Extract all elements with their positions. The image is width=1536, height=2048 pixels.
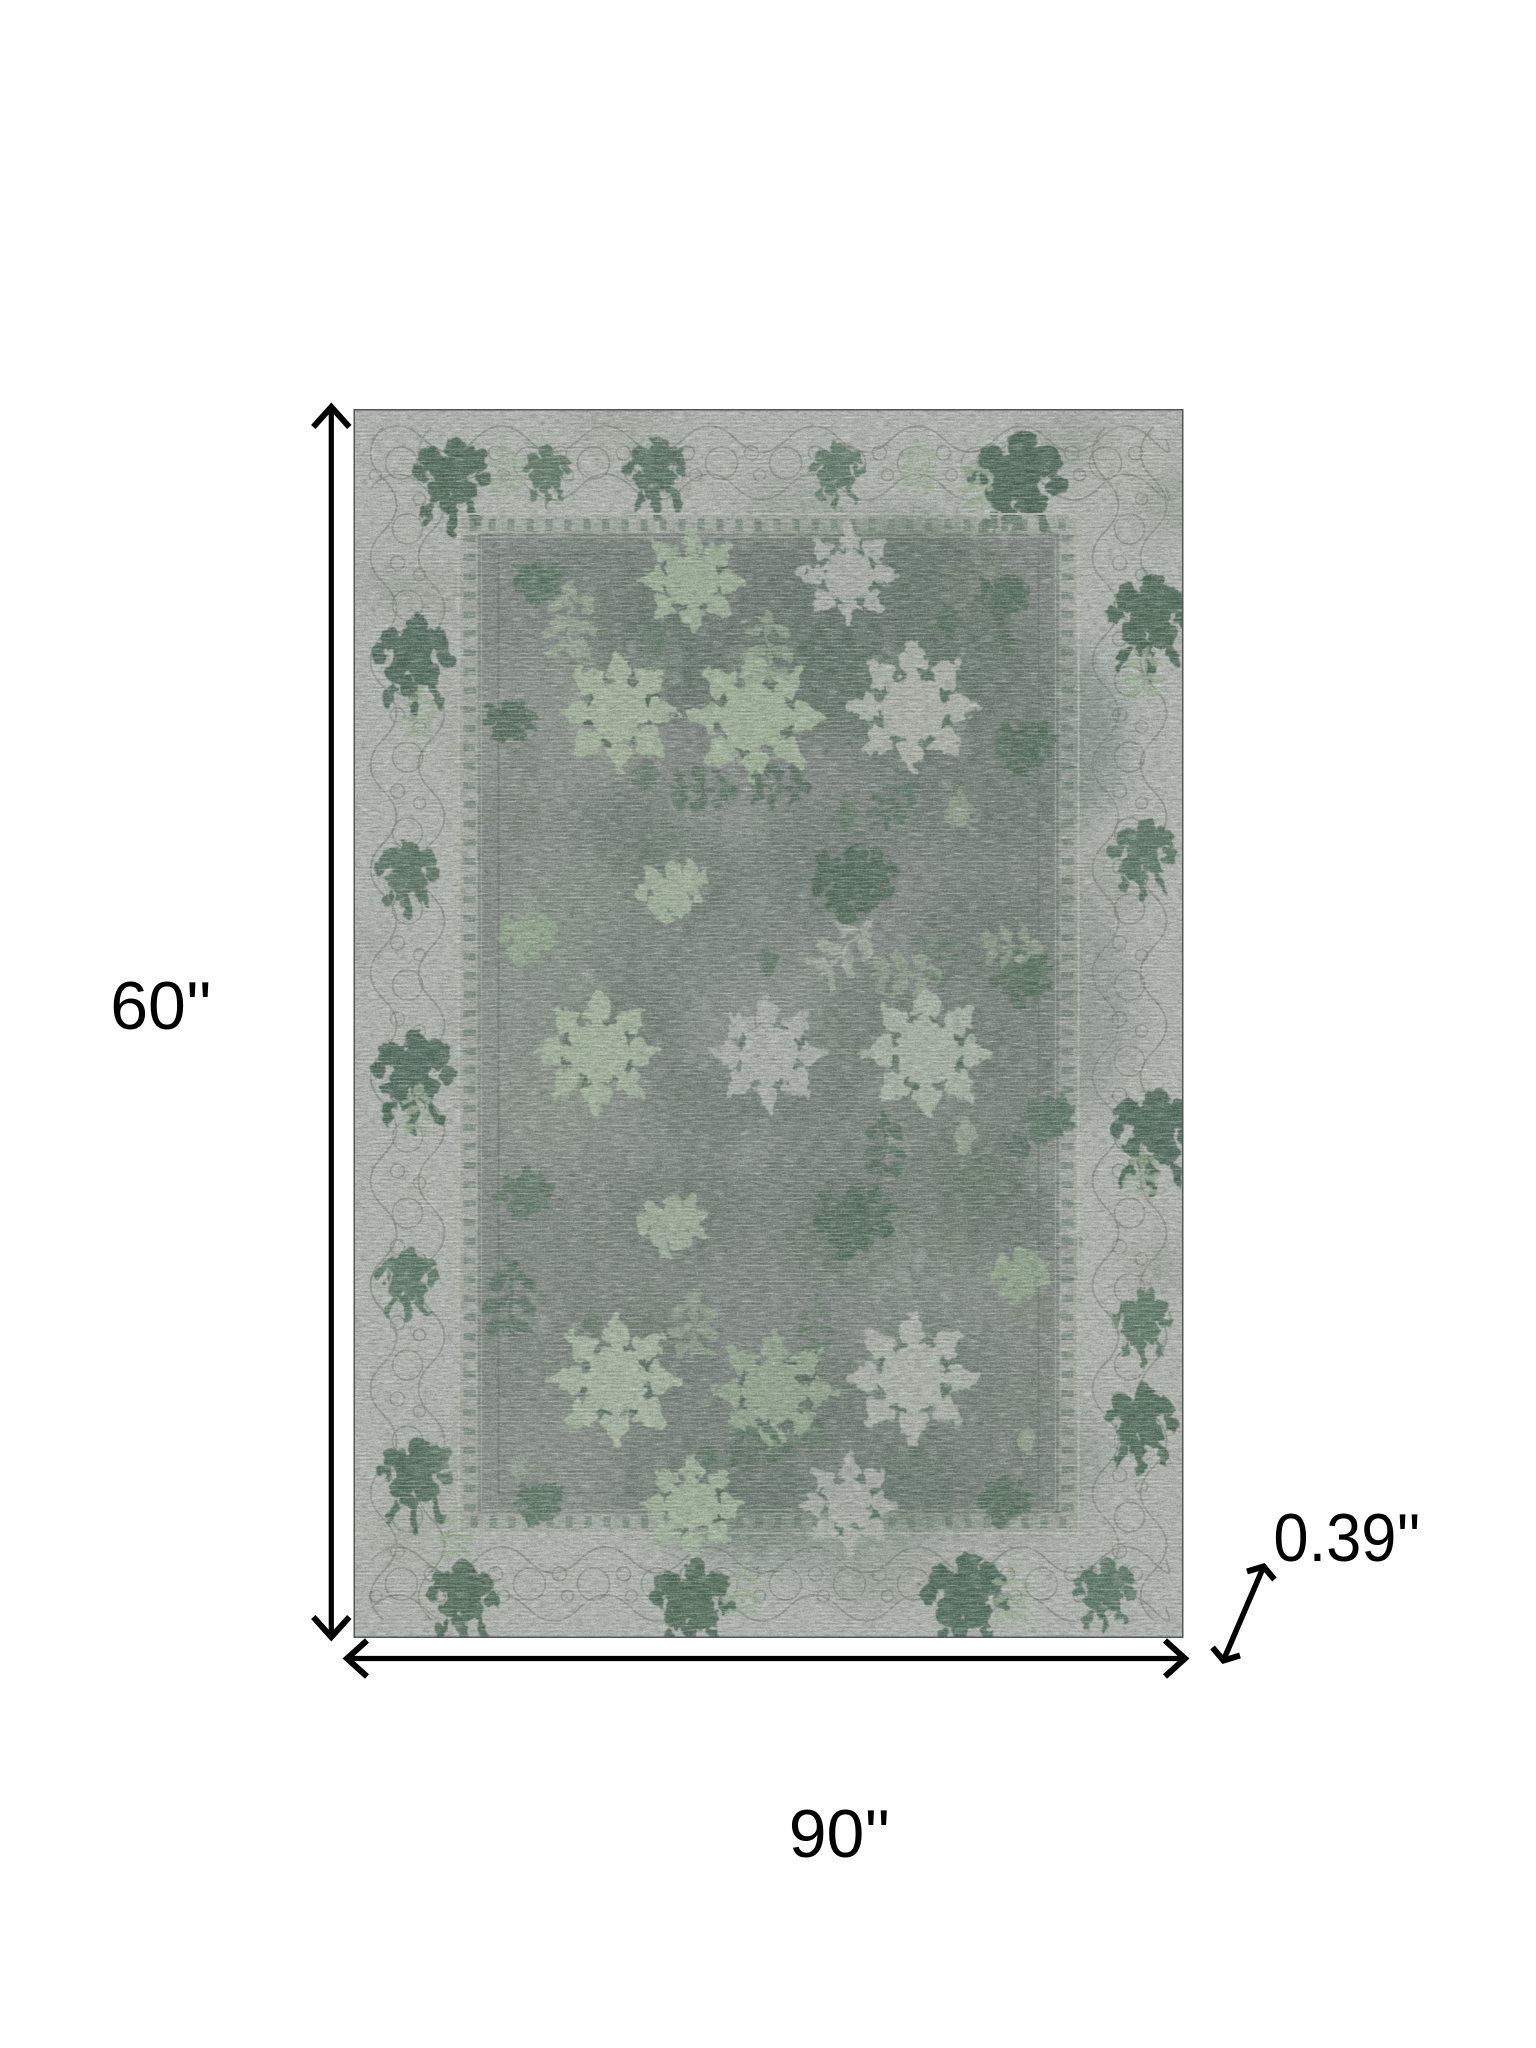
svg-text:90'': 90'' [789, 1796, 891, 1872]
svg-text:60'': 60'' [110, 968, 212, 1044]
svg-text:0.39'': 0.39'' [1273, 1500, 1420, 1576]
